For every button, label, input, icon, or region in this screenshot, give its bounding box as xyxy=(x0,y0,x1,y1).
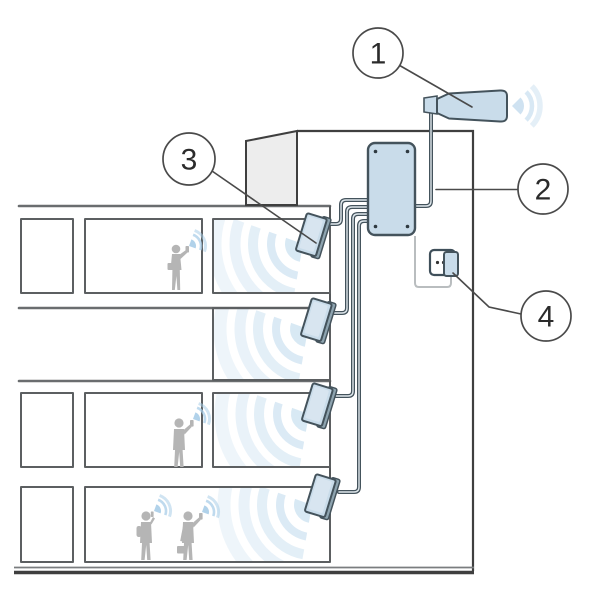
room-f4-left xyxy=(21,487,73,562)
cable-to-floor3-antenna xyxy=(336,214,368,396)
person-man-floor3 xyxy=(173,418,194,467)
roof-structure xyxy=(246,131,297,205)
person-man-floor4-left xyxy=(137,511,156,560)
callout-2: 2 xyxy=(518,164,568,214)
outdoor-antenna xyxy=(437,90,507,121)
wave-fan-floor3 xyxy=(221,384,309,501)
power-connection xyxy=(415,236,458,287)
amplifier-box xyxy=(368,143,415,235)
signal-amplifier xyxy=(368,143,415,235)
indoor-coverage-fans xyxy=(215,214,312,592)
people xyxy=(137,230,219,560)
room-f1-left xyxy=(21,219,73,293)
room-f3-left xyxy=(21,393,73,467)
signal-booster-diagram: 1 2 3 4 xyxy=(0,0,600,600)
amplifier-screw xyxy=(406,225,410,229)
callout-number-2: 2 xyxy=(535,174,552,207)
coax-from-outdoor-antenna xyxy=(416,111,431,206)
outdoor-signal-fan xyxy=(512,86,540,126)
leader-line-4 xyxy=(453,273,521,314)
amplifier-screw xyxy=(374,150,378,154)
callout-4: 4 xyxy=(521,291,571,341)
outdoor-antenna-assembly xyxy=(424,86,540,126)
amplifier-screw xyxy=(406,150,410,154)
outlet-hole-left xyxy=(436,261,439,264)
indoor-antenna-floor4 xyxy=(304,473,340,520)
person-woman-floor1 xyxy=(168,245,190,290)
indoor-antenna-floor3 xyxy=(301,382,337,429)
indoor-antennas xyxy=(295,212,340,520)
callout-1: 1 xyxy=(353,28,403,78)
callout-3: 3 xyxy=(163,133,215,185)
amplifier-screw xyxy=(374,225,378,229)
briefcase xyxy=(177,546,187,554)
person-man-floor4-right xyxy=(177,511,203,560)
phone-fan-man-floor4-left xyxy=(154,495,171,516)
outdoor-antenna-bracket xyxy=(424,96,437,114)
room-f1-middle xyxy=(85,219,202,293)
power-plug xyxy=(444,252,458,276)
callout-number-4: 4 xyxy=(538,301,555,334)
callout-number-1: 1 xyxy=(370,38,387,71)
phone-fan-woman xyxy=(189,230,206,251)
phone-fan-man-floor4-right xyxy=(202,496,219,517)
callout-number-3: 3 xyxy=(181,144,198,177)
